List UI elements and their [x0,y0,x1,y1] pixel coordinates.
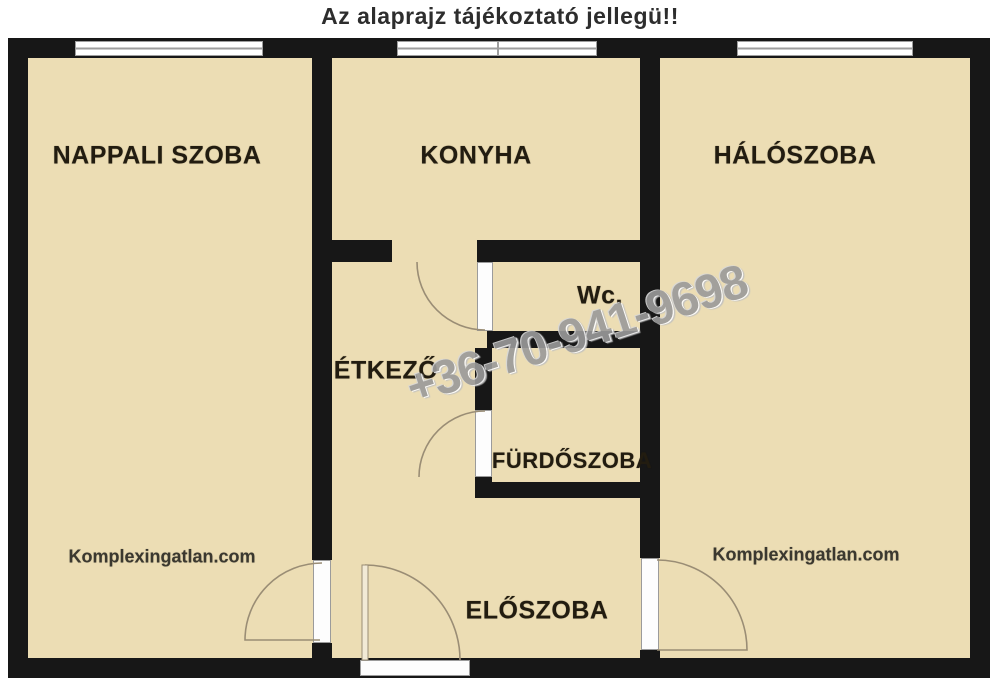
door-leaf-nappali [313,560,331,643]
wall-wc-top [477,240,660,262]
site-watermark-right: Komplexingatlan.com [712,545,899,566]
room-label-eloszoba: ELŐSZOBA [466,597,609,626]
site-watermark-left: Komplexingatlan.com [68,547,255,568]
door-leaf-furdo [475,410,492,477]
door-leaf-haloszoba [641,558,659,650]
wall-haloszoba-lower [640,650,660,658]
wall-furdo-bottom [477,482,660,498]
floorplan-canvas: NAPPALI SZOBA KONYHA HÁLÓSZOBA Wc. ÉTKEZ… [8,38,990,678]
disclaimer-title: Az alaprajz tájékoztató jellegü!! [0,3,1000,30]
entrance-threshold [360,660,470,676]
wall-konyha-stub [312,240,392,262]
room-label-konyha: KONYHA [420,142,531,171]
door-arc-nappali [245,563,322,640]
room-label-haloszoba: HÁLÓSZOBA [714,142,877,171]
room-label-furdoszoba: FÜRDŐSZOBA [492,448,652,474]
window-konyha [397,41,597,56]
room-label-nappali: NAPPALI SZOBA [53,142,262,171]
entrance-door-leaf [362,565,368,660]
phone-watermark: +36-70-941-9698 [400,254,754,416]
window-nappali [75,41,263,56]
floorplan-page: { "title": "Az alaprajz tájékoztató jell… [0,0,1000,684]
door-arc-wc [417,262,485,330]
door-arc-entrance [365,565,460,660]
door-arc-haloszoba [657,560,747,650]
window-haloszoba [737,41,913,56]
door-leaf-wc [477,262,493,331]
window-mullion [497,42,499,55]
wall-nappali-upper [312,58,332,560]
wall-nappali-lower [312,643,332,658]
